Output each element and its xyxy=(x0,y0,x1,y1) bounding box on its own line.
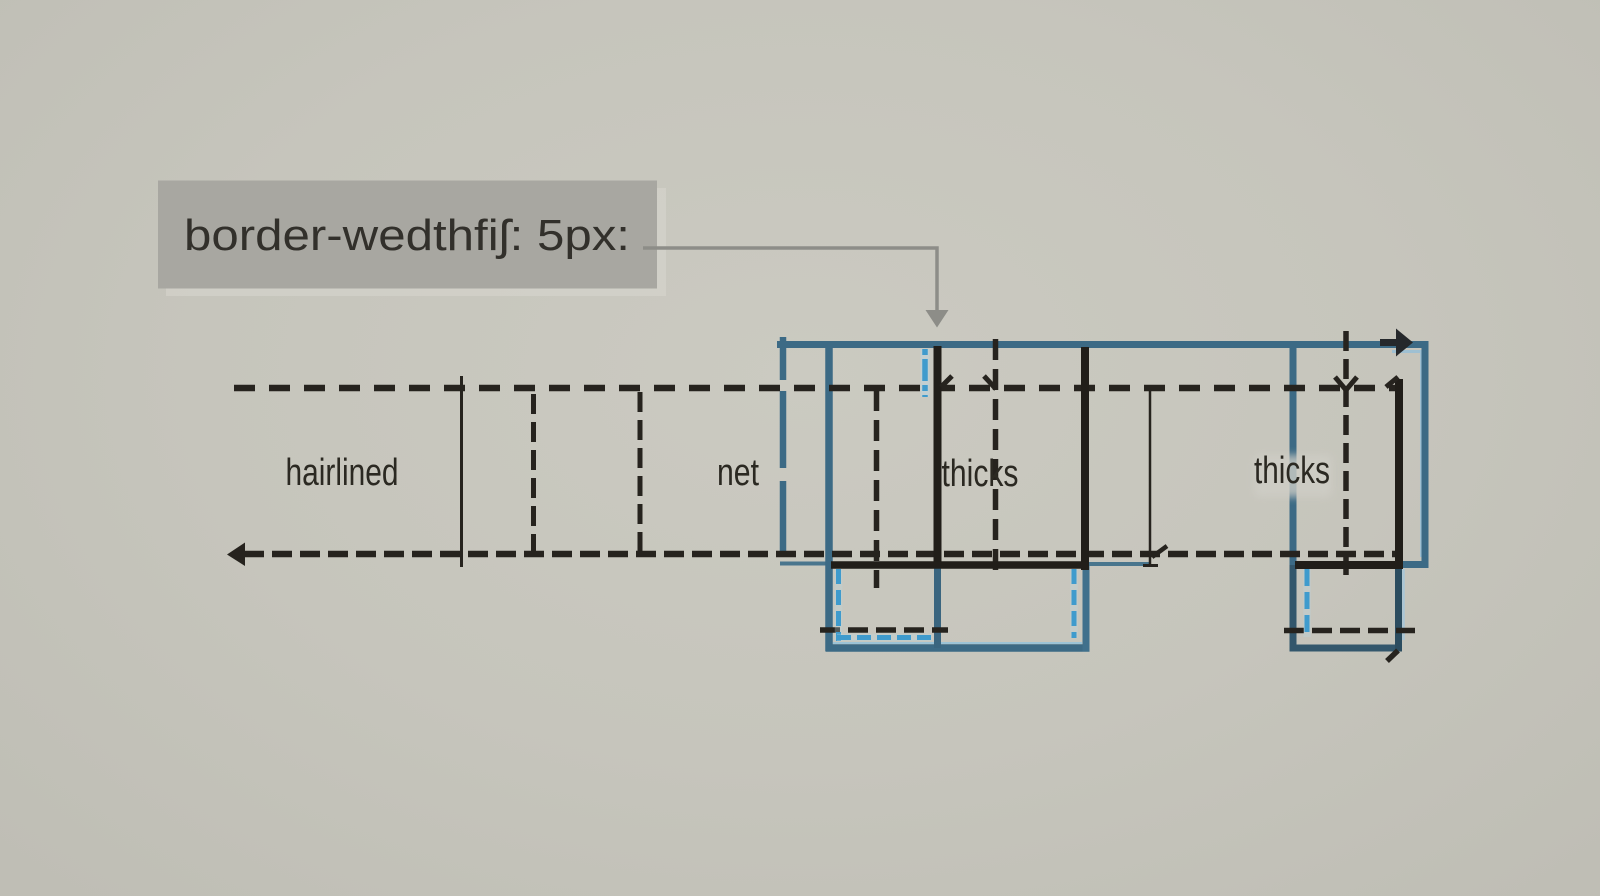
svg-text:net: net xyxy=(717,452,759,494)
svg-text:hairlined: hairlined xyxy=(286,452,399,494)
svg-text:thicks: thicks xyxy=(942,453,1019,495)
svg-text:thicks: thicks xyxy=(1254,450,1330,492)
svg-text:border-wedthfiʃ: 5px:: border-wedthfiʃ: 5px: xyxy=(184,211,630,260)
